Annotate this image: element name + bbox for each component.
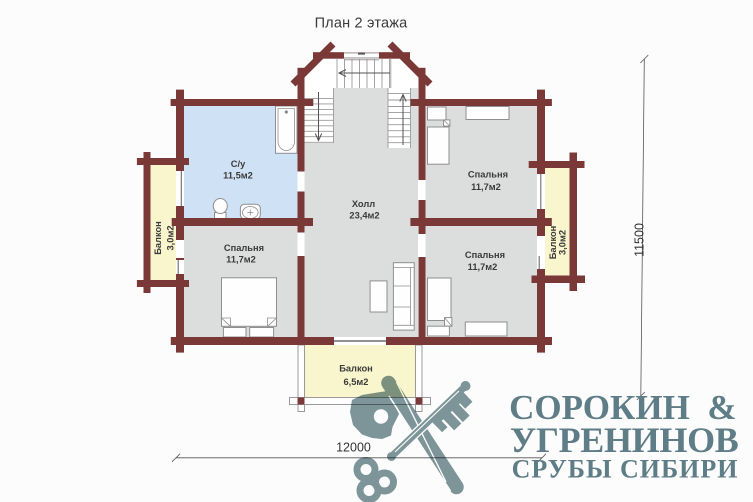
svg-text:11,7м2: 11,7м2: [226, 255, 256, 265]
svg-text:11,5м2: 11,5м2: [223, 171, 253, 181]
svg-text:12000: 12000: [336, 441, 371, 455]
svg-text:6,5м2: 6,5м2: [344, 377, 369, 387]
svg-text:3,0м2: 3,0м2: [558, 230, 568, 255]
svg-text:23,4м2: 23,4м2: [349, 211, 379, 221]
svg-text:С/у: С/у: [231, 159, 246, 169]
svg-text:11,7м2: 11,7м2: [468, 262, 498, 272]
svg-text:Спальня: Спальня: [465, 250, 505, 260]
svg-text:СРУБЫ СИБИРИ: СРУБЫ СИБИРИ: [512, 455, 739, 484]
svg-text:Спальня: Спальня: [468, 170, 508, 180]
svg-text:Холл: Холл: [352, 199, 375, 209]
svg-text:Балкон: Балкон: [153, 221, 163, 255]
svg-text:11,7м2: 11,7м2: [471, 182, 501, 192]
svg-text:Спальня: Спальня: [224, 243, 264, 253]
svg-text:План 2 этажа: План 2 этажа: [315, 16, 409, 32]
svg-text:Балкон: Балкон: [339, 364, 373, 374]
svg-text:3,0м2: 3,0м2: [166, 226, 176, 251]
svg-text:11500: 11500: [632, 223, 646, 257]
svg-text:Балкон: Балкон: [548, 226, 558, 260]
